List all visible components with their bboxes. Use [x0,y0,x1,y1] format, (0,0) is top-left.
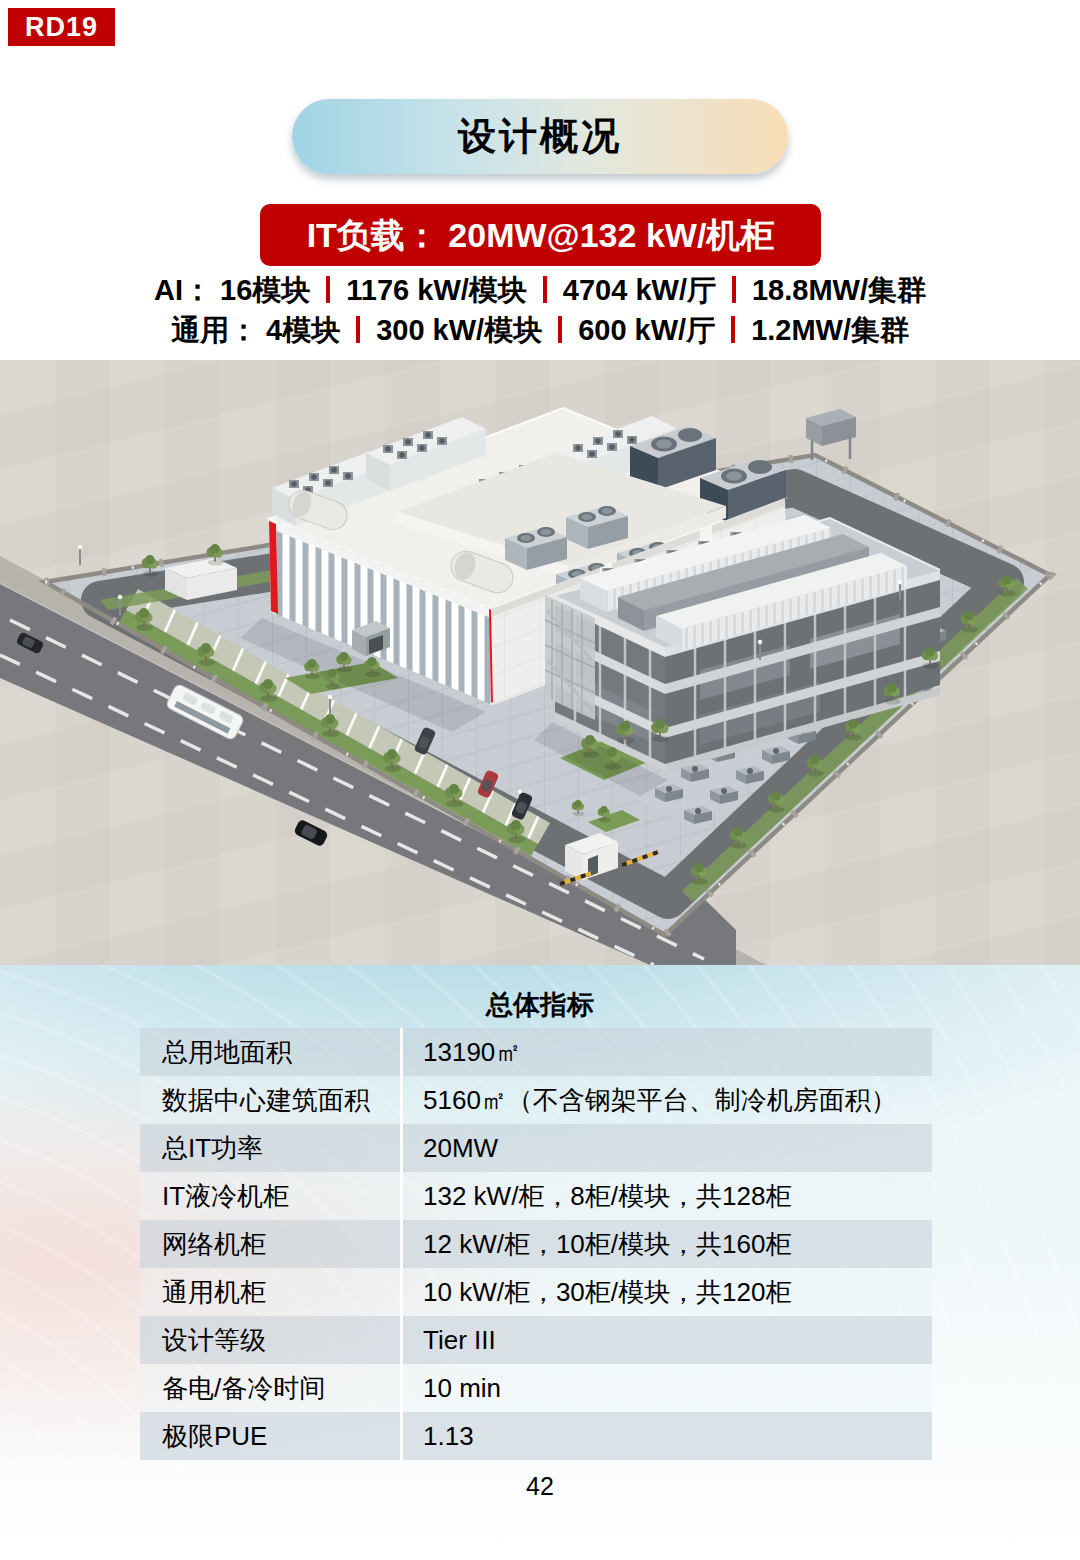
row-label: 总用地面积 [140,1028,400,1076]
table-row: 通用机柜10 kW/柜，30柜/模块，共120柜 [140,1268,932,1316]
spec-lines: AI： 16模块1176 kW/模块4704 kW/厅18.8MW/集群通用： … [0,270,1080,350]
spec-segment: AI： 16模块 [154,274,310,306]
table-row: 总IT功率20MW [140,1124,932,1172]
row-label: 网络机柜 [140,1220,400,1268]
separator-bar [732,276,736,303]
table-row: 极限PUE1.13 [140,1412,932,1460]
row-value: 12 kW/柜，10柜/模块，共160柜 [400,1220,932,1268]
row-value: 10 min [400,1364,932,1412]
row-label: 设计等级 [140,1316,400,1364]
spec-line: 通用： 4模块300 kW/模块600 kW/厅1.2MW/集群 [0,310,1080,350]
spec-line: AI： 16模块1176 kW/模块4704 kW/厅18.8MW/集群 [0,270,1080,310]
table-row: 设计等级Tier III [140,1316,932,1364]
spec-segment: 通用： 4模块 [171,314,340,346]
row-label: 数据中心建筑面积 [140,1076,400,1124]
table-title: 总体指标 [0,987,1080,1023]
row-label: 极限PUE [140,1412,400,1460]
datacenter-3d-render [0,360,1080,965]
page-number: 42 [0,1472,1080,1501]
row-value: 1.13 [400,1412,932,1460]
row-label: 通用机柜 [140,1268,400,1316]
separator-bar [558,316,562,343]
metrics-table: 总用地面积13190㎡数据中心建筑面积5160㎡（不含钢架平台、制冷机房面积）总… [140,1028,932,1460]
metrics-section: 总体指标 总用地面积13190㎡数据中心建筑面积5160㎡（不含钢架平台、制冷机… [0,965,1080,1560]
row-value: Tier III [400,1316,932,1364]
spec-segment: 4704 kW/厅 [563,274,716,306]
table-row: 备电/备冷时间10 min [140,1364,932,1412]
spec-segment: 1176 kW/模块 [346,274,527,306]
spec-segment: 600 kW/厅 [578,314,715,346]
row-label: 备电/备冷时间 [140,1364,400,1412]
row-value: 10 kW/柜，30柜/模块，共120柜 [400,1268,932,1316]
table-row: IT液冷机柜132 kW/柜，8柜/模块，共128柜 [140,1172,932,1220]
separator-bar [543,276,547,303]
separator-bar [356,316,360,343]
spec-segment: 18.8MW/集群 [752,274,926,306]
row-value: 132 kW/柜，8柜/模块，共128柜 [400,1172,932,1220]
it-load-banner: IT负载： 20MW@132 kW/机柜 [260,204,821,266]
corner-badge: RD19 [8,8,115,46]
table-row: 网络机柜12 kW/柜，10柜/模块，共160柜 [140,1220,932,1268]
table-row: 总用地面积13190㎡ [140,1028,932,1076]
page-title: 设计概况 [458,115,622,157]
row-value: 13190㎡ [400,1028,932,1076]
table-row: 数据中心建筑面积5160㎡（不含钢架平台、制冷机房面积） [140,1076,932,1124]
separator-bar [731,316,735,343]
slide-page: RD19 设计概况 IT负载： 20MW@132 kW/机柜 AI： 16模块1… [0,0,1080,1560]
row-value: 20MW [400,1124,932,1172]
row-label: 总IT功率 [140,1124,400,1172]
separator-bar [326,276,330,303]
page-title-pill: 设计概况 [292,99,788,174]
spec-segment: 1.2MW/集群 [751,314,909,346]
row-label: IT液冷机柜 [140,1172,400,1220]
spec-segment: 300 kW/模块 [376,314,542,346]
row-value: 5160㎡（不含钢架平台、制冷机房面积） [400,1076,932,1124]
